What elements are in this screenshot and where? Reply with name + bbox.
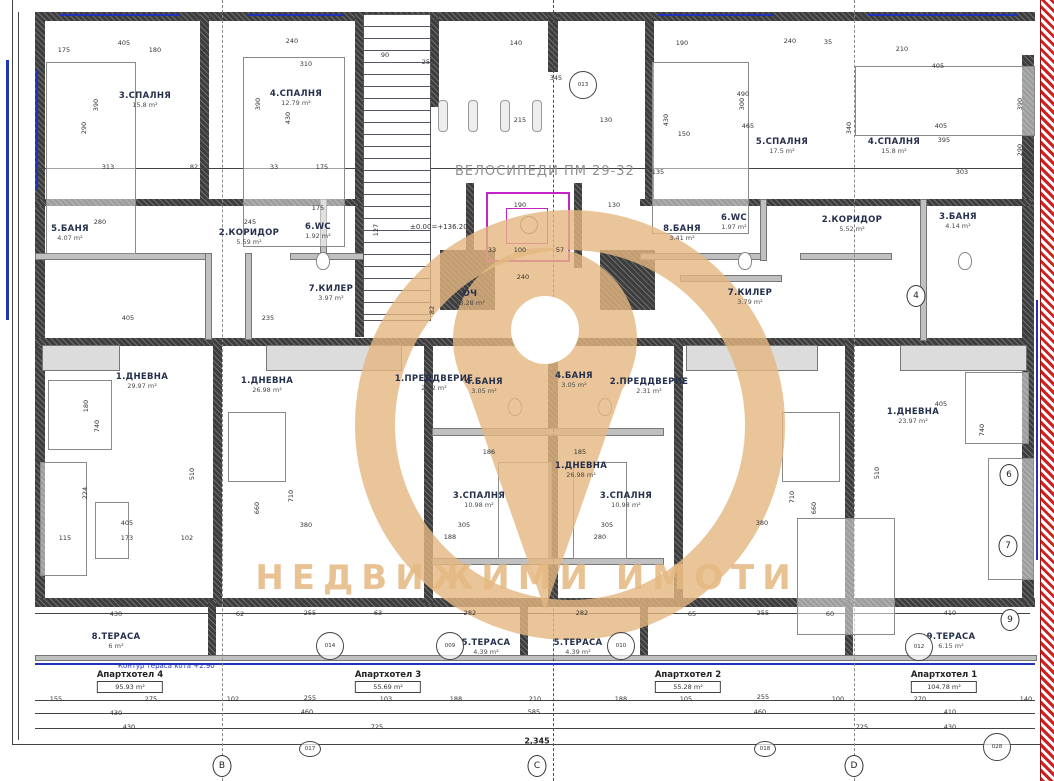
room-area: 10.98 m² [453,501,505,509]
grid-axis-center [553,0,554,781]
dimension-value: 224 [81,487,89,499]
dimension-value: 180 [82,400,90,412]
apartment-area: 55.28 m² [655,681,721,693]
room-area: 6.15 m² [927,642,976,650]
bicycle-icon [532,100,542,132]
room-area: 3.97 m² [309,294,353,302]
dimension-value: 410 [944,609,956,617]
dimension-value: 740 [93,420,101,432]
dimension-value: 430 [110,610,122,618]
grid-marker: C [528,755,547,777]
dimension-value: 82 [428,306,436,314]
dimension-value: 255 [757,693,769,701]
dimension-value: 345 [550,74,562,82]
kitchen-counter [266,345,402,371]
room-name: 2.ПРЕДДВЕРИЕ [610,377,688,387]
room-name: 4.БАНЯ [555,371,593,381]
dimension-line [12,0,13,745]
dimension-value: 310 [300,60,312,68]
dimension-value: 250 [422,58,434,66]
dimension-value: 185 [574,448,586,456]
room-area: 48.28 m² [455,299,485,307]
apartment-name: Апартхотел 4 [97,670,163,680]
detail-mark: 012 [905,633,933,661]
window-line [868,14,1018,16]
dining-table [48,380,112,450]
room-label: 5.БАНЯ4.07 m² [51,224,89,242]
dimension-value: 33 [270,163,278,171]
partition-wall [290,253,372,260]
dimension-value: 430 [110,709,122,717]
room-label: 4.БАНЯ3.05 m² [555,371,593,389]
room-area: 4.39 m² [554,648,603,656]
kitchen-counter [42,345,120,371]
room-label: 8.БАНЯ3.41 m² [663,224,701,242]
dimension-value: 660 [810,502,818,514]
dimension-value: 240 [286,37,298,45]
dimension-value: 240 [784,37,796,45]
dimension-value: 395 [938,136,950,144]
room-label: 3.БАНЯ4.14 m² [939,212,977,230]
dimension-value: 173 [121,534,133,542]
room-label: 1.ДНЕВНА26.98 m² [555,461,607,479]
dimension-value: 210 [529,695,541,703]
dimension-value: 65 [688,610,696,618]
room-label: 4.СПАЛНЯ12.79 m² [270,89,322,107]
grid-axis [222,0,223,781]
room-label: 6.WC1.97 m² [721,213,747,231]
dimension-value: 430 [662,114,670,126]
bed [498,462,552,559]
dimension-value: 290 [1016,144,1024,156]
dimension-value: 102 [181,534,193,542]
room-label: 6.WC1.92 m² [305,222,331,240]
room-name: 1.ДНЕВНА [241,376,293,386]
room-label: 2.КОРИДОР5.52 m² [822,215,882,233]
sofa [797,518,895,635]
dimension-value: 510 [873,467,881,479]
apartment-label: Апартхотел 355.69 m² [355,670,421,693]
room-area: 4.07 m² [51,234,89,242]
room-label: 5.СПАЛНЯ17.5 m² [756,137,808,155]
room-label: 9.ТЕРАСА6.15 m² [927,632,976,650]
room-area: 3.79 m² [728,298,772,306]
dimension-value: 305 [601,521,613,529]
dimension-value: 303 [956,168,968,176]
dimension-value: 103 [380,695,392,703]
partition-wall [35,253,207,260]
room-name: 5.ТЕРАСА [462,638,511,648]
detail-mark: 018 [754,741,776,757]
room-name: ОЧ [455,289,485,299]
dimension-value: 150 [678,130,690,138]
detail-mark: 014 [316,632,344,660]
dimension-value: 63 [374,609,382,617]
dimension-value: 140 [510,39,522,47]
room-name: 1.ДНЕВНА [555,461,607,471]
room-area: 23.97 m² [887,417,939,425]
room-label: 8.ТЕРАСА6 m² [92,632,141,650]
detail-mark: 009 [436,632,464,660]
dimension-value: 390 [92,99,100,111]
bicycle-icon [500,100,510,132]
dimension-value: 465 [742,122,754,130]
partition-wall [205,253,212,340]
dimension-value: 430 [123,723,135,731]
dimension-value: 280 [94,218,106,226]
dimension-value: 430 [284,112,292,124]
room-area: 26.98 m² [241,386,293,394]
room-label: 1.ДНЕВНА23.97 m² [887,407,939,425]
dimension-value: 300 [738,98,746,110]
dimension-value: 50 [201,46,209,54]
dimension-value: 190 [676,39,688,47]
room-label: 1.ПРЕДДВЕРИЕ2.32 m² [395,374,473,392]
dimension-value: 510 [188,468,196,480]
dimension-value: 102 [227,695,239,703]
dimension-value: 405 [121,519,133,527]
wall-segment [208,600,216,658]
room-name: 4.БАНЯ [465,377,503,387]
dimension-value: 460 [301,708,313,716]
dimension-value: 710 [287,490,295,502]
room-label: 3.СПАЛНЯ15.8 m² [119,91,171,109]
dimension-value: 390 [254,98,262,110]
room-name: 8.БАНЯ [663,224,701,234]
dimension-value: 135 [652,168,664,176]
room-name: 3.СПАЛНЯ [119,91,171,101]
dimension-value: 282 [464,609,476,617]
window-line [658,14,773,16]
room-area: 29.97 m² [116,382,168,390]
grid-marker: 9 [1001,609,1020,631]
detail-mark: 028 [983,733,1011,761]
grid-marker: B [213,755,232,777]
dimension-line [35,728,1035,729]
toilet-fixture [738,252,752,270]
room-label: 5.ТЕРАСА4.39 m² [462,638,511,656]
dimension-value: 245 [244,218,256,226]
dimension-value: 240 [517,273,529,281]
room-label: 3.СПАЛНЯ10.98 m² [600,491,652,509]
dimension-value: 130 [608,201,620,209]
detail-mark: 013 [569,71,597,99]
room-label: 4.БАНЯ3.05 m² [465,377,503,395]
dimension-value: 180 [149,46,161,54]
room-name: 5.БАНЯ [51,224,89,234]
toilet-fixture [316,252,330,270]
detail-mark: 017 [299,741,321,757]
toilet-fixture [508,398,522,416]
dimension-value: 270 [914,695,926,703]
wall-segment [35,338,1032,346]
room-name: 7.КИЛЕР [309,284,353,294]
dining-table [782,412,840,482]
apartment-area: 95.93 m² [97,681,163,693]
room-area: 6 m² [92,642,141,650]
room-area: 5.52 m² [822,225,882,233]
room-name: 4.СПАЛНЯ [270,89,322,99]
dimension-value: 405 [932,62,944,70]
terrace-contour-label: Контур тераса кота +2.90 [118,662,215,670]
partition-wall [245,253,252,340]
room-area: 12.79 m² [270,99,322,107]
room-area: 4.39 m² [462,648,511,656]
dimension-value: 210 [896,45,908,53]
wall-segment [520,600,528,655]
dimension-value: 280 [594,533,606,541]
room-name: 3.СПАЛНЯ [453,491,505,501]
room-area: 2.31 m² [610,387,688,395]
dimension-value: 235 [262,314,274,322]
dimension-value: 740 [978,424,986,436]
room-label: 4.СПАЛНЯ15.8 m² [868,137,920,155]
sofa [95,502,129,559]
dimension-value: 255 [757,609,769,617]
dimension-value: 390 [1016,98,1024,110]
room-label: ОЧ48.28 m² [455,289,485,307]
room-name: 7.КИЛЕР [728,288,772,298]
dimension-value: 105 [680,695,692,703]
window-line [248,14,343,16]
room-name: 4.СПАЛНЯ [868,137,920,147]
room-area: 3.05 m² [555,381,593,389]
room-area: 5.59 m² [219,238,279,246]
room-name: 2.КОРИДОР [219,228,279,238]
toilet-fixture [958,252,972,270]
dimension-value: 188 [615,695,627,703]
apartment-name: Апартхотел 1 [911,670,977,680]
dimension-value: 100 [514,246,526,254]
apartment-name: Апартхотел 3 [355,670,421,680]
partition-wall [920,199,927,341]
dimension-value: 405 [935,122,947,130]
room-name: 1.ДНЕВНА [887,407,939,417]
wall-segment [213,338,222,604]
dimension-value: 215 [514,116,526,124]
room-area: 3.05 m² [465,387,503,395]
room-label: 7.КИЛЕР3.97 m² [309,284,353,302]
room-area: 15.8 m² [119,101,171,109]
dimension-value: 660 [253,502,261,514]
room-label: 1.ДНЕВНА29.97 m² [116,372,168,390]
dimension-value: 175 [316,163,328,171]
brand-watermark-text: НЕДВИЖИМИ ИМОТИ [255,558,798,598]
dimension-value: 710 [788,491,796,503]
room-label: 2.ПРЕДДВЕРИЕ2.31 m² [610,377,688,395]
dimension-value: 175 [312,204,324,212]
dimension-value: 62 [236,610,244,618]
dimension-value: 313 [102,163,114,171]
partition-wall [432,428,664,436]
room-name: 9.ТЕРАСА [927,632,976,642]
dimension-value: 460 [754,708,766,716]
dimension-value: 175 [58,46,70,54]
dimension-value: 725 [856,723,868,731]
elevation-label: ±0.00=+136.20 [410,223,468,231]
grid-marker: D [845,755,864,777]
dimension-value: 725 [371,723,383,731]
dimension-line [18,12,19,740]
room-name: 8.ТЕРАСА [92,632,141,642]
floor-plan: НЕДВИЖИМИ ИМОТИ ВЕЛОСИПЕДИ ПМ 29-32 ±0.0… [0,0,1054,781]
dimension-value: 255 [304,694,316,702]
window-line [6,60,9,320]
room-label: 3.СПАЛНЯ10.98 m² [453,491,505,509]
room-area: 26.98 m² [555,471,607,479]
dimension-value: 405 [122,314,134,322]
elevator-symbol [520,216,538,234]
room-area: 17.5 m² [756,147,808,155]
room-name: 2.КОРИДОР [822,215,882,225]
dimension-value: 130 [600,116,612,124]
partition-wall [800,253,892,260]
dimension-value: 127 [372,224,380,236]
room-area: 3.41 m² [663,234,701,242]
room-label: 5.ТЕРАСА4.39 m² [554,638,603,656]
bed [243,57,345,247]
kitchen-counter [900,345,1027,371]
room-area: 15.8 m² [868,147,920,155]
room-area: 1.97 m² [721,223,747,231]
dimension-value: 405 [118,39,130,47]
apartment-label: Апартхотел 495.93 m² [97,670,163,693]
dimension-value: 90 [381,51,389,59]
bike-storage-label: ВЕЛОСИПЕДИ ПМ 29-32 [455,164,635,179]
room-label: 1.ДНЕВНА26.98 m² [241,376,293,394]
window-line [36,70,38,190]
room-name: 1.ПРЕДДВЕРИЕ [395,374,473,384]
wall-segment [640,600,648,655]
dimension-value: 255 [304,609,316,617]
room-area: 10.98 m² [600,501,652,509]
toilet-fixture [598,398,612,416]
dimension-value: 585 [528,708,540,716]
dimension-value: 380 [300,521,312,529]
dimension-value: 140 [1020,695,1032,703]
dimension-value: 380 [756,519,768,527]
partition-wall [760,199,767,261]
dimension-value: 57 [556,246,564,254]
dimension-value: 430 [944,723,956,731]
room-name: 3.СПАЛНЯ [600,491,652,501]
bicycle-icon [438,100,448,132]
dimension-value: 410 [944,708,956,716]
room-label: 7.КИЛЕР3.79 m² [728,288,772,306]
room-label: 2.КОРИДОР5.59 m² [219,228,279,246]
room-name: 6.WC [305,222,331,232]
partition-wall [680,275,782,282]
grid-marker: 4 [907,285,926,307]
room-area: 2.32 m² [395,384,473,392]
boundary-wall-red [1040,0,1054,781]
dimension-value: 275 [145,695,157,703]
grid-marker: 7 [999,535,1018,557]
dimension-value: 82 [190,163,198,171]
room-name: 5.ТЕРАСА [554,638,603,648]
room-area: 1.92 m² [305,232,331,240]
dining-table [228,412,286,482]
kitchen-counter [686,345,818,371]
window-line [60,14,180,16]
dimension-value: 188 [450,695,462,703]
detail-mark: 010 [607,632,635,660]
room-name: 6.WC [721,213,747,223]
dimension-value: 305 [458,521,470,529]
apartment-area: 55.69 m² [355,681,421,693]
dimension-value: 155 [50,695,62,703]
wall-segment [200,12,209,202]
dimension-value: 290 [80,122,88,134]
room-name: 1.ДНЕВНА [116,372,168,382]
dimension-value: 282 [576,609,588,617]
bicycle-icon [468,100,478,132]
sofa [40,462,87,576]
dimension-value: 188 [444,533,456,541]
wall-segment [574,183,582,268]
dimension-value: 35 [824,38,832,46]
dimension-value: 340 [845,122,853,134]
room-name: 3.БАНЯ [939,212,977,222]
apartment-area: 104.78 m² [911,681,977,693]
room-name: 5.СПАЛНЯ [756,137,808,147]
dimension-value: 33 [488,246,496,254]
window-line [1036,300,1038,560]
apartment-name: Апартхотел 2 [655,670,721,680]
total-dimension-label: 2,345 [524,737,549,746]
grid-marker: 6 [1000,464,1019,486]
apartment-label: Апартхотел 1104.78 m² [911,670,977,693]
dimension-value: 186 [483,448,495,456]
dimension-value: 60 [826,610,834,618]
dimension-value: 100 [832,695,844,703]
dimension-value: 190 [514,201,526,209]
partition-wall [35,655,1037,661]
dining-table [965,372,1029,444]
apartment-label: Апартхотел 255.28 m² [655,670,721,693]
dimension-value: 115 [59,534,71,542]
bed [652,62,749,234]
room-area: 4.14 m² [939,222,977,230]
